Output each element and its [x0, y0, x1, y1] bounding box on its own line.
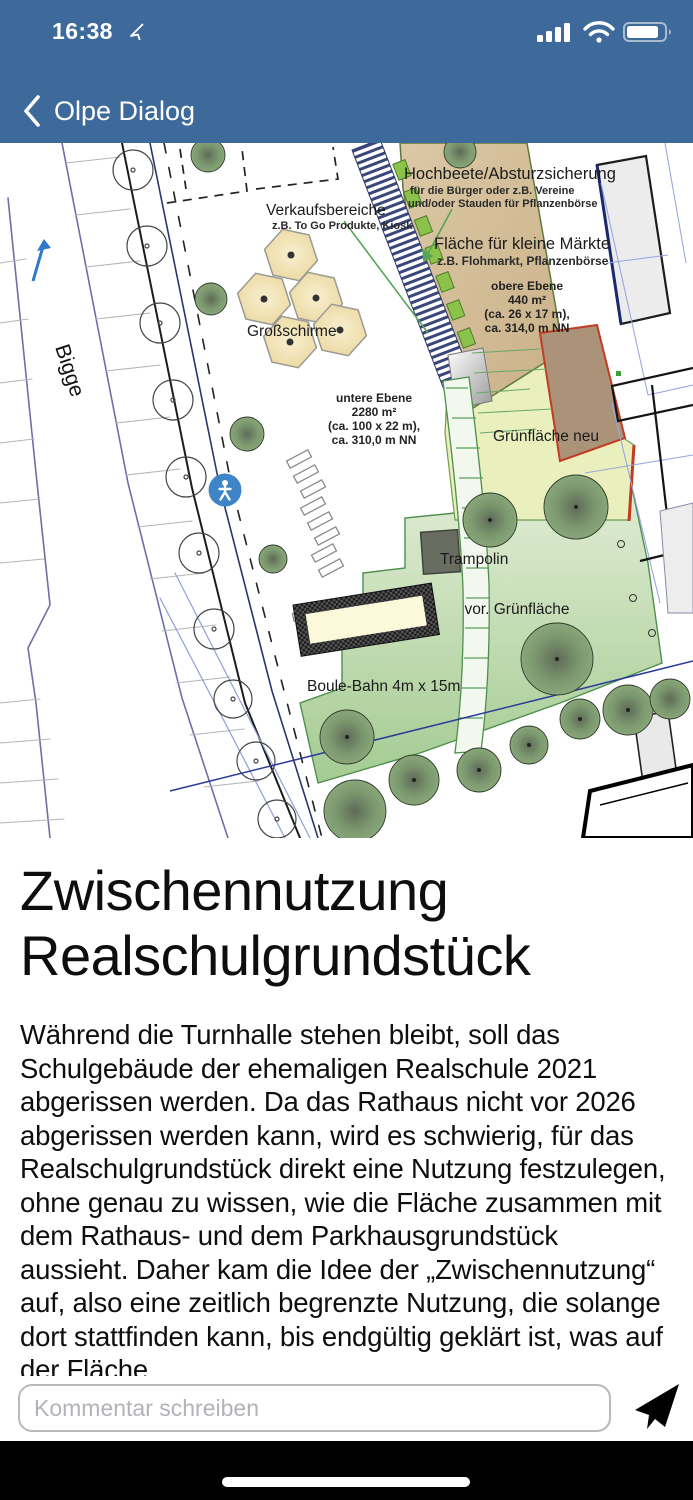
label-gruenflaeche-neu: Grünfläche neu	[493, 428, 599, 445]
label-maerkte: Fläche für kleine Märkte	[434, 235, 610, 253]
home-indicator[interactable]	[222, 1477, 470, 1487]
label-untere-3: (ca. 100 x 22 m),	[328, 419, 420, 433]
location-arrow-icon	[128, 22, 146, 45]
battery-icon	[623, 20, 675, 44]
wifi-icon	[582, 20, 616, 44]
back-button[interactable]: Olpe Dialog	[22, 94, 195, 128]
label-verkauf: Verkaufsbereiche	[266, 202, 386, 219]
label-boule: Boule-Bahn 4m x 15m	[307, 678, 460, 695]
label-obere-1: obere Ebene	[491, 279, 563, 293]
label-maerkte-sub: z.B. Flohmarkt, Pflanzenbörse	[437, 254, 609, 268]
label-untere-4: ca. 310,0 m NN	[332, 433, 417, 447]
label-hochbeete: Hochbeete/Absturzsicherung	[404, 165, 616, 183]
top-bar: 16:38	[0, 0, 693, 143]
status-time: 16:38	[52, 18, 113, 45]
send-icon	[631, 1382, 681, 1432]
label-vor-gruenflaeche: vor. Grünfläche	[464, 601, 569, 618]
label-verkauf-sub: z.B. To Go Produkte, Kiosk	[272, 220, 413, 232]
label-hochbeete-sub2: und/oder Stauden für Pflanzenbörse	[408, 198, 597, 210]
status-icons	[535, 20, 675, 44]
nav-bar: Olpe Dialog	[0, 88, 693, 134]
send-button[interactable]	[630, 1382, 682, 1434]
comment-bar	[0, 1376, 693, 1441]
label-hochbeete-sub1: für die Bürger oder z.B. Vereine	[410, 185, 574, 197]
label-untere-1: untere Ebene	[336, 391, 412, 405]
label-grossschirme: Großschirme	[247, 323, 337, 340]
article-body: Während die Turnhalle stehen bleibt, sol…	[20, 1018, 673, 1387]
comment-input[interactable]	[18, 1384, 611, 1432]
label-trampolin: Trampolin	[440, 551, 508, 568]
nav-title: Olpe Dialog	[54, 96, 195, 127]
label-untere-2: 2280 m²	[352, 405, 397, 419]
article-title: Zwischennutzung Realschulgrundstück	[20, 858, 673, 988]
label-obere-4: ca. 314,0 m NN	[485, 321, 570, 335]
pedestrian-icon	[209, 474, 242, 507]
article: Zwischennutzung Realschulgrundstück Währ…	[0, 838, 693, 1387]
status-bar: 16:38	[0, 14, 693, 50]
site-plan-image: Bigge Verkaufsbereiche z.B. To Go Produk…	[0, 143, 693, 838]
chevron-left-icon	[22, 94, 42, 128]
home-bar	[0, 1441, 693, 1500]
label-obere-2: 440 m²	[508, 293, 546, 307]
cell-signal-icon	[535, 20, 575, 44]
app-screen: 16:38	[0, 0, 693, 1500]
label-obere-3: (ca. 26 x 17 m),	[484, 307, 569, 321]
